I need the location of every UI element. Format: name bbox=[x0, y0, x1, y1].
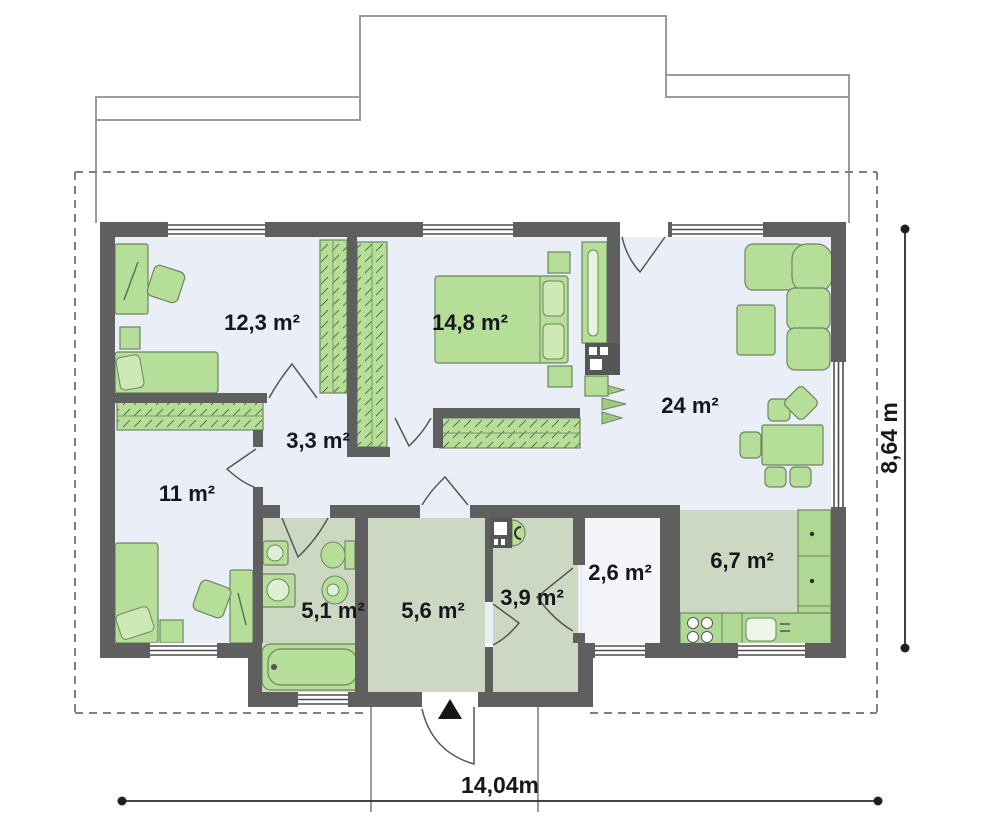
room-label-bedroom-1: 12,3 m² bbox=[224, 310, 300, 335]
desk-icon bbox=[115, 244, 148, 314]
window bbox=[831, 362, 846, 507]
wardrobe-icon bbox=[320, 240, 347, 393]
bathtub-icon bbox=[262, 644, 363, 690]
dimension-depth-label: 8,64 m bbox=[876, 402, 902, 474]
wardrobe-icon bbox=[117, 402, 263, 430]
wall-segment bbox=[262, 505, 280, 518]
room-label-living-room: 24 m² bbox=[661, 393, 718, 418]
wall-segment bbox=[573, 518, 585, 565]
room-label-pantry: 2,6 m² bbox=[588, 560, 652, 585]
window bbox=[672, 222, 763, 237]
dimension-width-label: 14,04m bbox=[461, 772, 539, 798]
bed-icon bbox=[115, 352, 218, 393]
wall-segment bbox=[470, 505, 680, 518]
window bbox=[595, 643, 645, 658]
room-label-utility: 3,9 m² bbox=[500, 585, 564, 610]
dimension-bottom: 14,04m bbox=[118, 772, 883, 806]
nightstand-icon bbox=[548, 366, 572, 387]
floor-plan-page: 12,3 m² 14,8 m² 24 m² 3,3 m² 11 m² 5,1 m… bbox=[0, 0, 1000, 823]
wardrobe-mirror-icon bbox=[582, 242, 607, 343]
roof-outline bbox=[96, 16, 849, 223]
nightstand-icon bbox=[160, 620, 183, 643]
window bbox=[298, 692, 348, 707]
wood-box-icon bbox=[585, 376, 608, 396]
terrace-door-opening bbox=[620, 222, 668, 237]
wall-segment bbox=[115, 393, 267, 403]
flue-block-icon bbox=[490, 518, 512, 548]
wall-segment bbox=[607, 222, 620, 343]
room-label-bathroom: 5,1 m² bbox=[301, 598, 365, 623]
floor-plan-drawing: 12,3 m² 14,8 m² 24 m² 3,3 m² 11 m² 5,1 m… bbox=[0, 0, 1000, 823]
window bbox=[738, 643, 805, 658]
wall-segment bbox=[347, 447, 390, 457]
wall-segment bbox=[573, 633, 585, 643]
window bbox=[423, 222, 513, 237]
wall-segment bbox=[253, 430, 263, 447]
wardrobe-icon bbox=[357, 242, 387, 447]
wall-segment bbox=[660, 510, 680, 643]
wall-segment bbox=[330, 505, 420, 518]
wall-segment bbox=[485, 647, 493, 692]
nightstand-icon bbox=[548, 252, 570, 273]
window bbox=[150, 643, 217, 658]
wall-segment bbox=[253, 487, 263, 643]
toilet-icon bbox=[321, 541, 355, 569]
room-label-bedroom-3: 11 m² bbox=[159, 481, 215, 506]
wall-segment bbox=[433, 408, 443, 448]
wardrobe-icon bbox=[440, 418, 580, 448]
bed-icon bbox=[115, 543, 158, 643]
washbasin-icon bbox=[263, 541, 288, 565]
desk-icon bbox=[230, 570, 253, 643]
room-label-kitchen: 6,7 m² bbox=[710, 548, 774, 573]
window bbox=[168, 222, 265, 237]
room-label-bedroom-2: 14,8 m² bbox=[432, 310, 508, 335]
fireplace-flue-icon bbox=[585, 343, 620, 375]
washing-machine-icon bbox=[262, 574, 295, 607]
nightstand-icon bbox=[120, 327, 140, 349]
coffee-table-icon bbox=[737, 305, 775, 355]
wall-segment bbox=[100, 222, 115, 658]
room-label-vestibule: 5,6 m² bbox=[401, 598, 465, 623]
room-label-hallway: 3,3 m² bbox=[286, 428, 350, 453]
dimension-right: 8,64 m bbox=[876, 225, 910, 653]
entrance-door bbox=[422, 699, 474, 764]
wall-segment bbox=[433, 408, 580, 418]
wall-segment bbox=[347, 237, 357, 447]
